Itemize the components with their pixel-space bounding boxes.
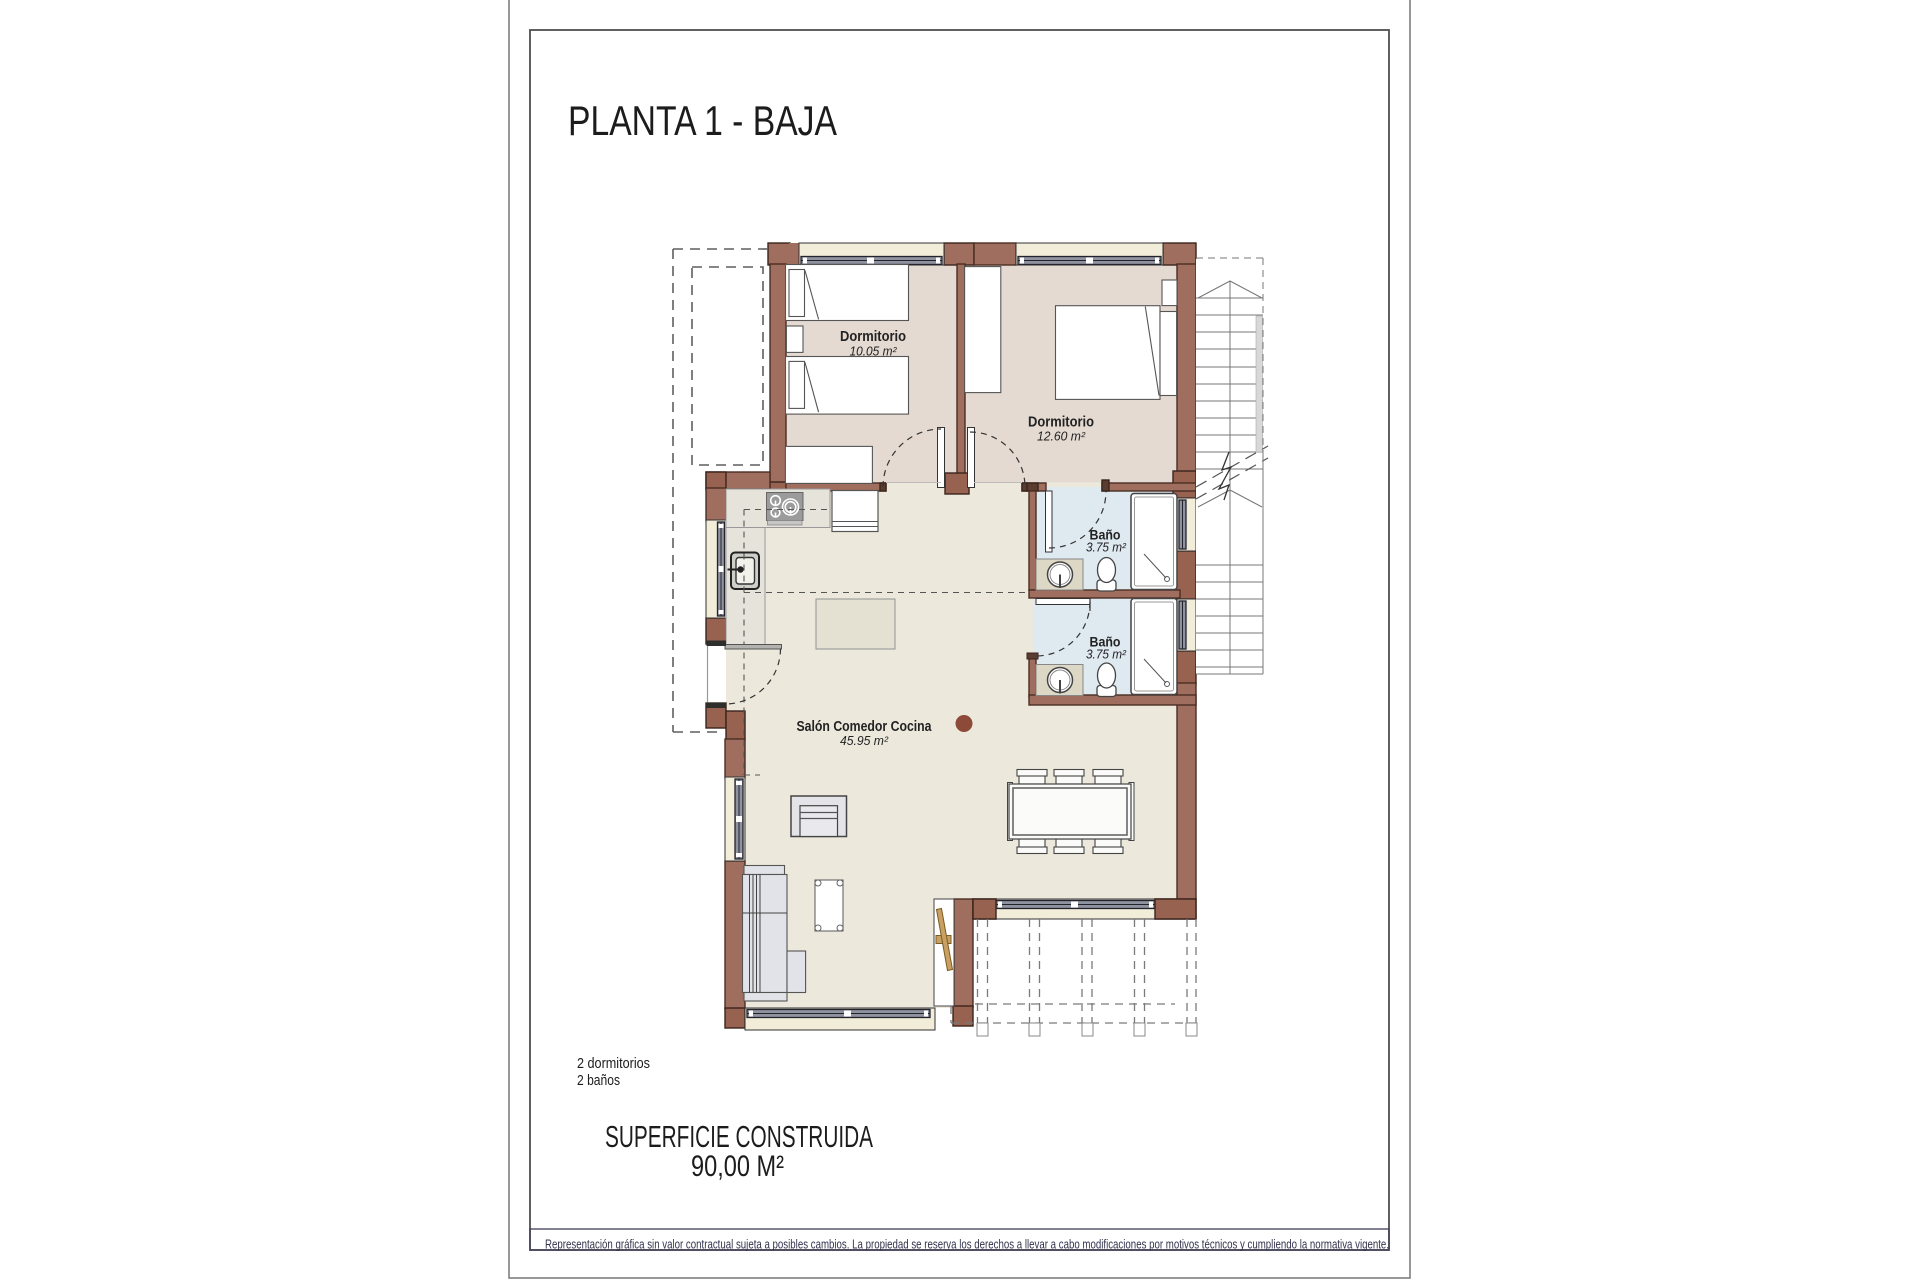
svg-text:2 baños: 2 baños [577, 1073, 620, 1089]
svg-text:12.60 m²: 12.60 m² [1037, 429, 1086, 444]
svg-text:Representación gráfica sin val: Representación gráfica sin valor contrac… [545, 1238, 1389, 1252]
svg-text:90,00 M²: 90,00 M² [691, 1150, 784, 1183]
svg-text:45.95 m²: 45.95 m² [840, 733, 889, 748]
svg-text:2 dormitorios: 2 dormitorios [577, 1056, 650, 1072]
svg-text:3.75 m²: 3.75 m² [1086, 541, 1127, 555]
svg-text:10.05 m²: 10.05 m² [850, 344, 898, 359]
svg-text:PLANTA 1 - BAJA: PLANTA 1 - BAJA [568, 97, 837, 144]
svg-text:3.75 m²: 3.75 m² [1086, 648, 1127, 662]
svg-text:SUPERFICIE CONSTRUIDA: SUPERFICIE CONSTRUIDA [605, 1119, 873, 1154]
